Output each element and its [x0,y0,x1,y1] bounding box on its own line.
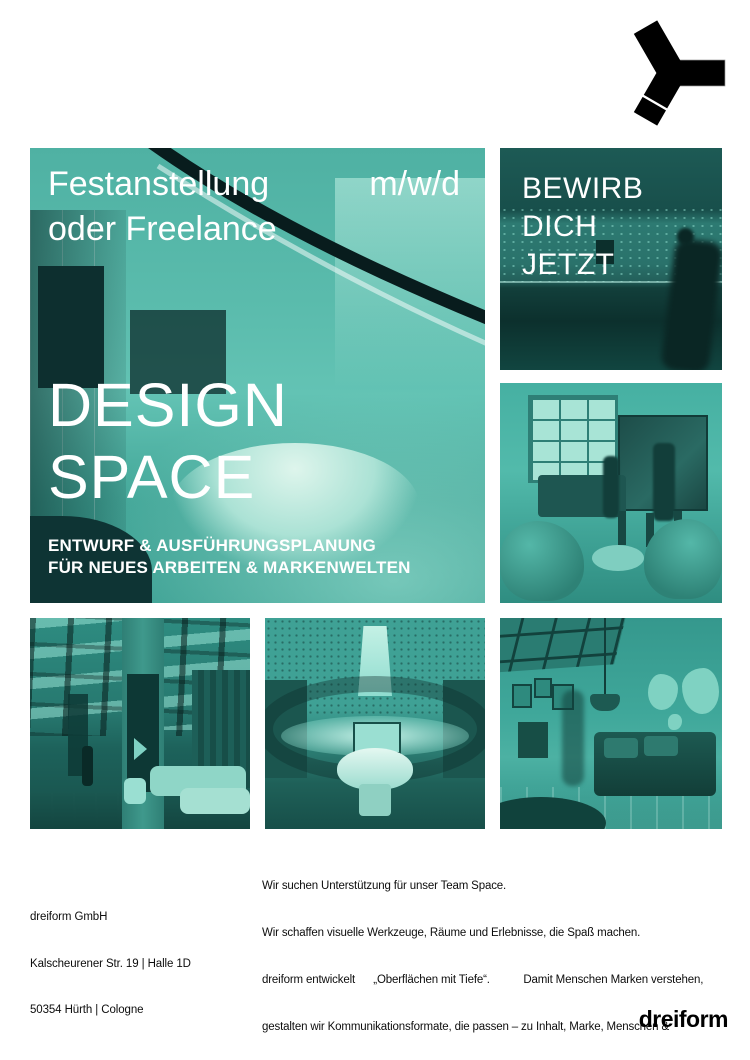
coffee-table-shape [598,786,642,820]
coffee-table-shape [592,545,644,571]
stool-shape [618,511,626,545]
dreiform-wordmark: dreiform [639,1006,728,1033]
sofa-shape [180,788,250,814]
chevron-arrow-shape [134,738,147,760]
exhibition-room-photo [265,618,485,829]
hero-subtitle: ENTWURF & AUSFÜHRUNGSPLANUNG FÜR NEUES A… [48,535,411,579]
skylight-shape [358,626,392,696]
job-description-line: Wir schaffen visuelle Werkzeuge, Räume u… [262,926,703,942]
job-description-line: Wir suchen Unterstützung für unser Team … [262,879,703,895]
hero-subtitle-line2: FÜR NEUES ARBEITEN & MARKENWELTEN [48,557,411,579]
hero-photo-showroom: Festanstellung m/w/d oder Freelance DESI… [30,148,485,603]
hero-heading-line1: DESIGN [48,369,288,441]
hero-title: Festanstellung m/w/d oder Freelance [48,162,460,252]
job-description: Wir suchen Unterstützung für unser Team … [262,848,703,1060]
pendant-lamp-shape [590,694,620,711]
company-name: dreiform GmbH [30,910,223,926]
hero-title-line2: oder Freelance [48,207,460,252]
cta-line1: BEWIRB [522,170,643,208]
hero-subtitle-line1: ENTWURF & AUSFÜHRUNGSPLANUNG [48,535,411,557]
cushion-shape [604,738,638,758]
lounge-photo [500,618,722,829]
armchair-shape [644,519,722,599]
cta-line3: JETZT [522,246,643,284]
picture-frame-shape [534,678,552,698]
hero-heading-line2: SPACE [48,441,288,513]
person-silhouette [82,746,93,786]
person-silhouette [653,443,675,521]
coffered-ceiling [500,618,630,674]
contact-block: dreiform GmbH Kalscheurener Str. 19 | Ha… [30,848,223,1060]
meeting-room-photo [500,383,722,603]
chair-shape [124,778,146,804]
person-silhouette [603,456,619,518]
dreiform-logo-icon [628,18,728,126]
world-map-decal [682,668,719,714]
lamp-cord-shape [604,618,606,696]
cabinet-shape [518,722,548,758]
industrial-hall-photo [30,618,250,829]
cta-text: BEWIRB DICH JETZT [522,170,643,284]
armchair-shape [500,521,584,601]
world-map-decal [668,714,682,730]
picture-frame-shape [512,684,532,708]
job-description-line: dreiform entwickelt „Oberflächen mit Tie… [262,973,703,989]
person-silhouette [562,690,584,786]
hero-title-line1: Festanstellung [48,162,269,207]
world-map-decal [648,674,678,710]
cta-line2: DICH [522,208,643,246]
address-street: Kalscheurener Str. 19 | Halle 1D [30,957,223,973]
job-description-line: gestalten wir Kommunikationsformate, die… [262,1020,703,1036]
hero-heading: DESIGN SPACE [48,369,288,513]
cushion-shape [644,736,678,756]
table-base-shape [359,784,391,816]
poster-page: Festanstellung m/w/d oder Freelance DESI… [0,0,750,1060]
cta-photo: BEWIRB DICH JETZT [500,148,722,370]
hero-badge-mwd: m/w/d [369,162,460,207]
address-city: 50354 Hürth | Cologne [30,1003,223,1019]
